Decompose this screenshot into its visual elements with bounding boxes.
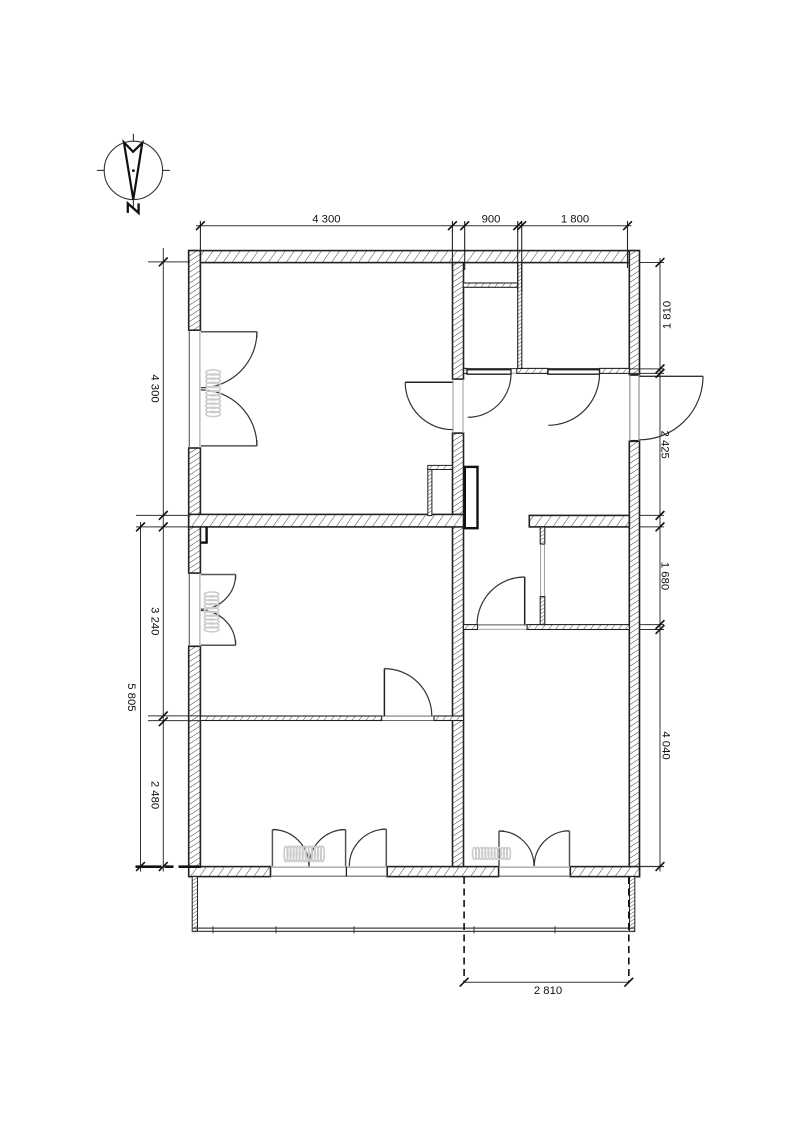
svg-text:1 810: 1 810 bbox=[662, 301, 674, 329]
svg-text:3 240: 3 240 bbox=[148, 607, 160, 635]
svg-text:2 810: 2 810 bbox=[534, 985, 562, 997]
svg-text:2 425: 2 425 bbox=[659, 431, 671, 459]
svg-text:5 805: 5 805 bbox=[125, 683, 137, 711]
svg-text:2 480: 2 480 bbox=[148, 781, 160, 809]
svg-text:1 800: 1 800 bbox=[561, 213, 589, 225]
svg-text:4 300: 4 300 bbox=[312, 213, 340, 225]
svg-text:1 680: 1 680 bbox=[659, 562, 671, 590]
svg-text:900: 900 bbox=[482, 213, 501, 225]
svg-text:4 300: 4 300 bbox=[149, 374, 161, 402]
svg-text:4 040: 4 040 bbox=[660, 731, 672, 759]
